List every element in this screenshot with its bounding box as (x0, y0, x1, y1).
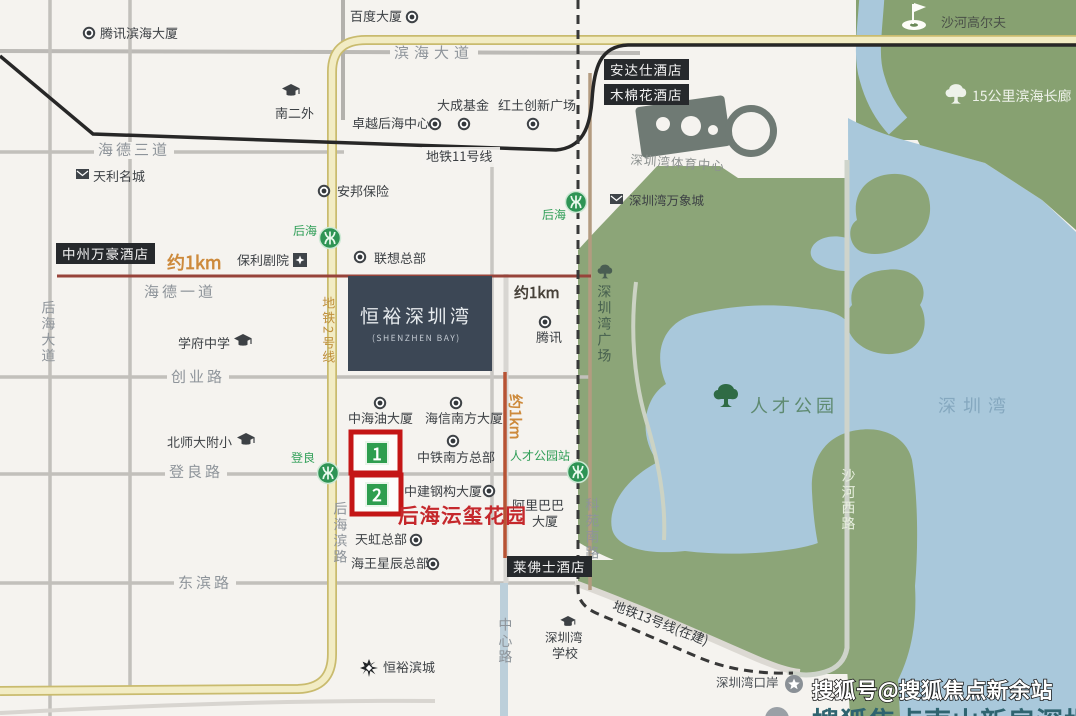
svg-text:1: 1 (372, 440, 381, 465)
svg-text:2: 2 (372, 481, 381, 506)
